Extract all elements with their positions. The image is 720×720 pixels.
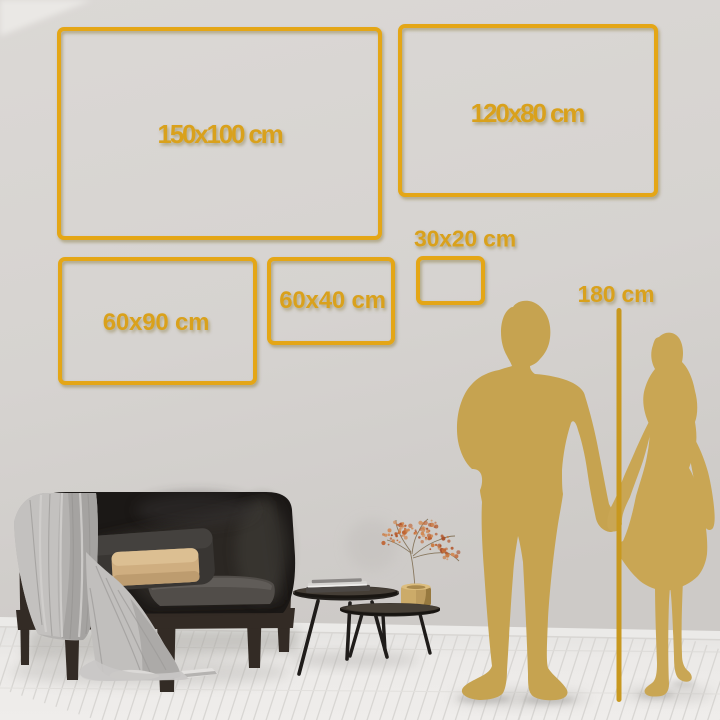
- svg-text:30x20 cm: 30x20 cm: [414, 226, 516, 252]
- svg-text:180 cm: 180 cm: [578, 281, 655, 307]
- svg-text:60x90 cm: 60x90 cm: [103, 309, 210, 336]
- svg-text:60x40 cm: 60x40 cm: [279, 287, 386, 314]
- svg-text:120x80 cm: 120x80 cm: [471, 98, 585, 128]
- svg-text:150x100 cm: 150x100 cm: [157, 119, 282, 149]
